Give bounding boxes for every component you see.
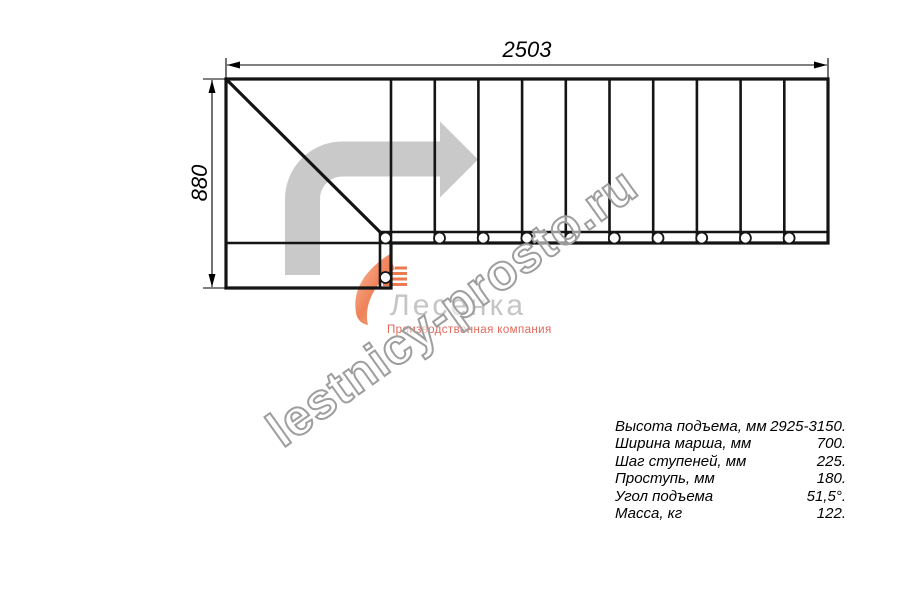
spec-label: Угол подъема [615,488,713,505]
spec-label: Масса, кг [615,505,682,522]
dimension-height: 880 [187,79,227,288]
spec-label: Шаг ступеней, мм [615,453,746,470]
spec-label: Высота подъема, мм [615,418,767,435]
spec-row: Масса, кг 122. [615,505,846,522]
spec-row: Высота подъема, мм 2925-3150. [615,418,846,435]
spec-row: Шаг ступеней, мм 225. [615,453,846,470]
spec-table: Высота подъема, мм 2925-3150. Ширина мар… [615,418,846,522]
spec-row: Ширина марша, мм 700. [615,435,846,452]
spec-value: 180. [817,470,846,487]
spec-value: 700. [817,435,846,452]
spec-value: 2925-3150. [770,418,846,435]
spec-row: Проступь, мм 180. [615,470,846,487]
spec-value: 51,5°. [807,488,846,505]
dim-height-label: 880 [187,164,212,201]
spec-label: Проступь, мм [615,470,715,487]
spec-label: Ширина марша, мм [615,435,751,452]
dimension-width: 2503 [226,37,828,78]
spec-value: 122. [817,505,846,522]
spec-row: Угол подъема 51,5°. [615,488,846,505]
blueprint-page: Лесенка Производственная компания [0,0,900,600]
spec-value: 225. [817,453,846,470]
dim-width-label: 2503 [502,37,553,62]
